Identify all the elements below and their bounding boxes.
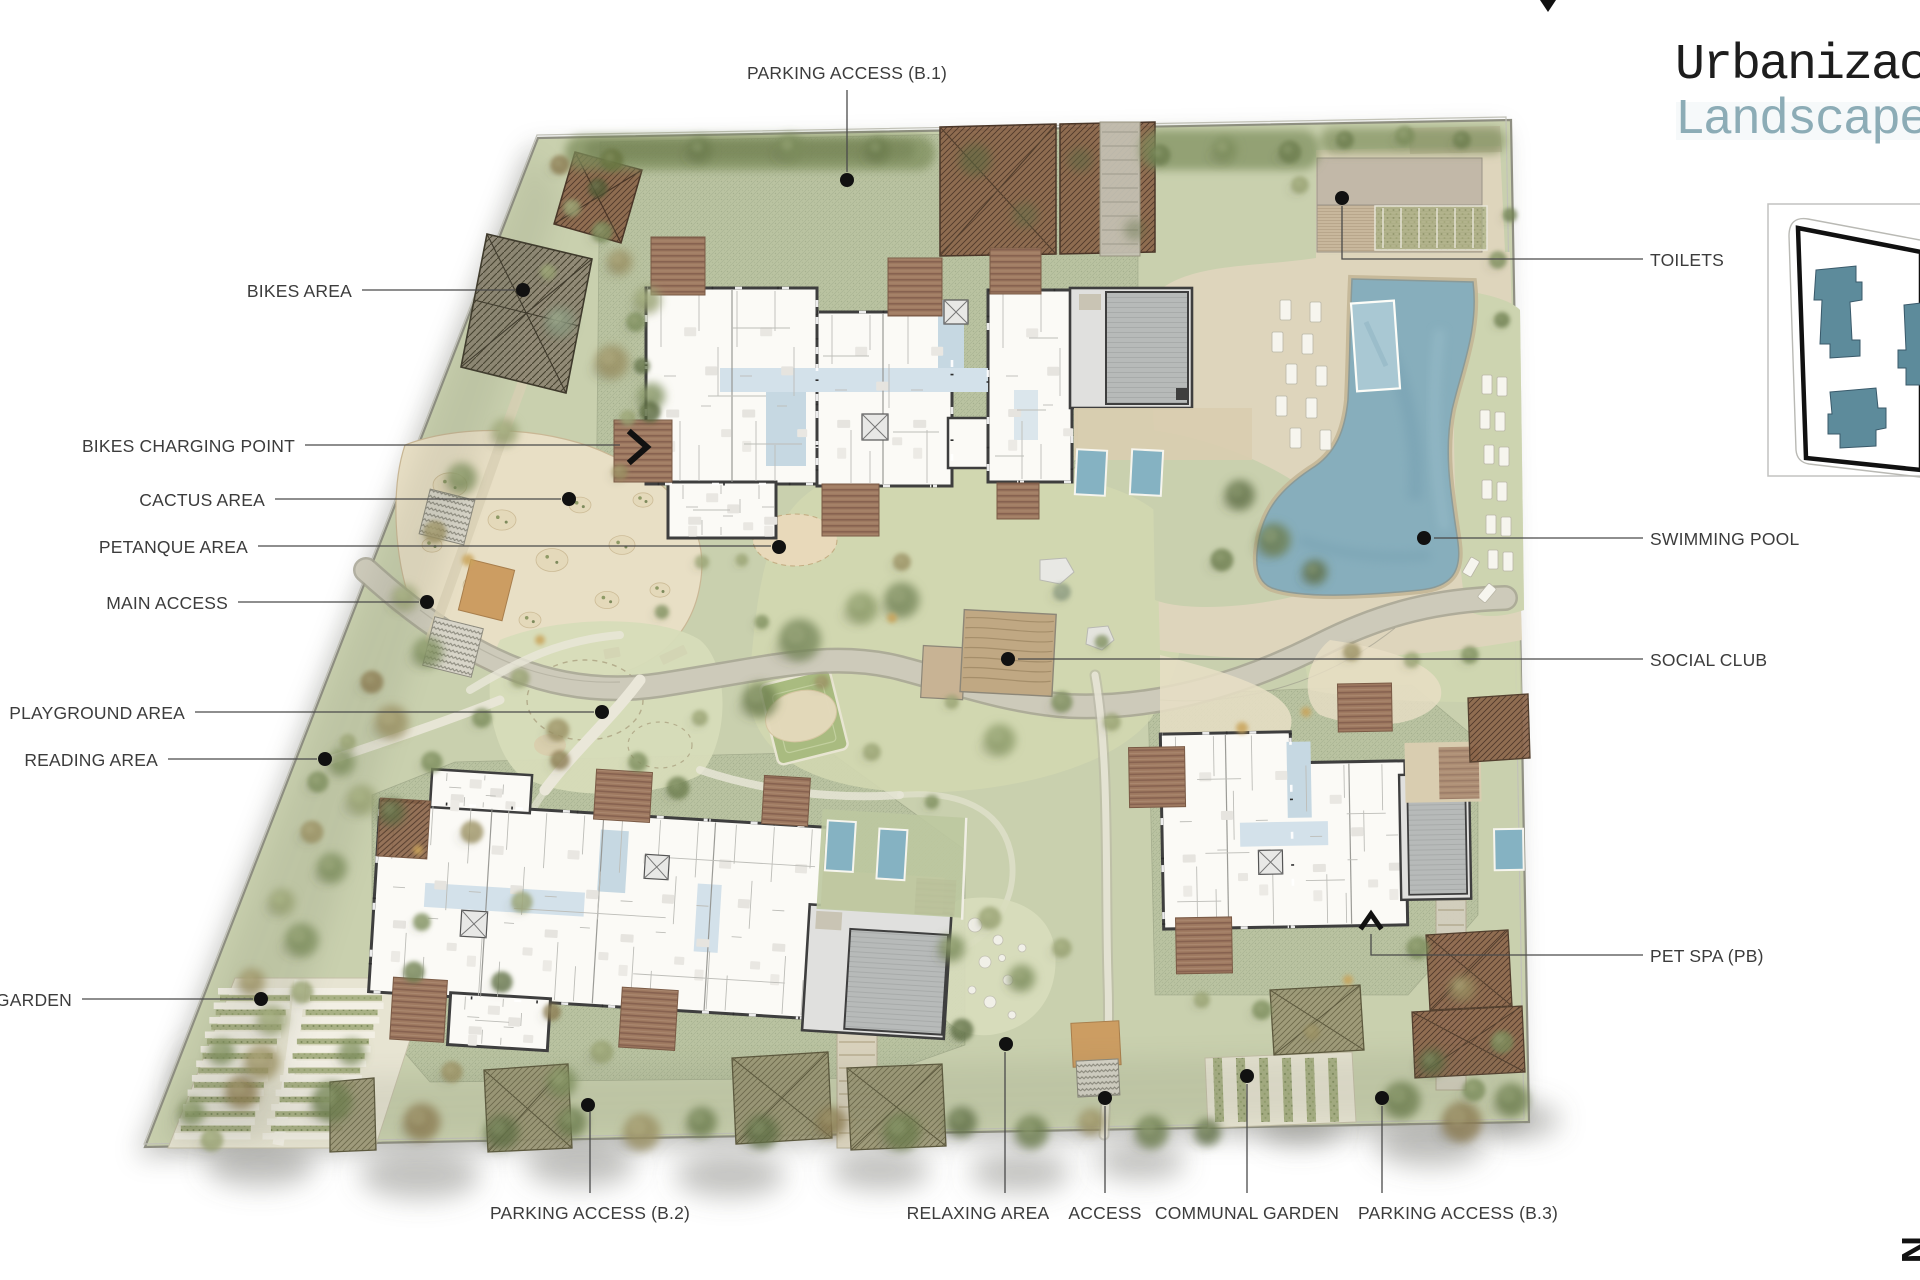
svg-text:COMMUNAL GARDEN: COMMUNAL GARDEN	[1155, 1203, 1339, 1223]
svg-text:RELAXING AREA: RELAXING AREA	[907, 1203, 1050, 1223]
svg-text:PET SPA (PB): PET SPA (PB)	[1650, 946, 1764, 966]
svg-text:PLAYGROUND AREA: PLAYGROUND AREA	[9, 703, 185, 723]
svg-text:SWIMMING POOL: SWIMMING POOL	[1650, 529, 1799, 549]
svg-text:BIKES AREA: BIKES AREA	[247, 281, 352, 301]
svg-text:N: N	[1893, 1236, 1920, 1263]
svg-text:TOILETS: TOILETS	[1650, 250, 1724, 270]
svg-text:MAIN ACCESS: MAIN ACCESS	[106, 593, 228, 613]
svg-text:PARKING ACCESS (B.1): PARKING ACCESS (B.1)	[747, 63, 947, 83]
svg-text:BIKES CHARGING POINT: BIKES CHARGING POINT	[82, 436, 295, 456]
svg-text:READING AREA: READING AREA	[24, 750, 158, 770]
svg-text:ACCESS: ACCESS	[1068, 1203, 1141, 1223]
svg-text:Urbanizaci: Urbanizaci	[1675, 37, 1920, 94]
svg-text:SOCIAL CLUB: SOCIAL CLUB	[1650, 650, 1767, 670]
svg-text:CACTUS AREA: CACTUS AREA	[139, 490, 265, 510]
svg-text:AL GARDEN: AL GARDEN	[0, 990, 72, 1010]
svg-text:PETANQUE AREA: PETANQUE AREA	[99, 537, 248, 557]
svg-text:PARKING ACCESS (B.3): PARKING ACCESS (B.3)	[1358, 1203, 1558, 1223]
svg-text:Landscaped: Landscaped	[1675, 92, 1920, 149]
svg-text:PARKING ACCESS (B.2): PARKING ACCESS (B.2)	[490, 1203, 690, 1223]
